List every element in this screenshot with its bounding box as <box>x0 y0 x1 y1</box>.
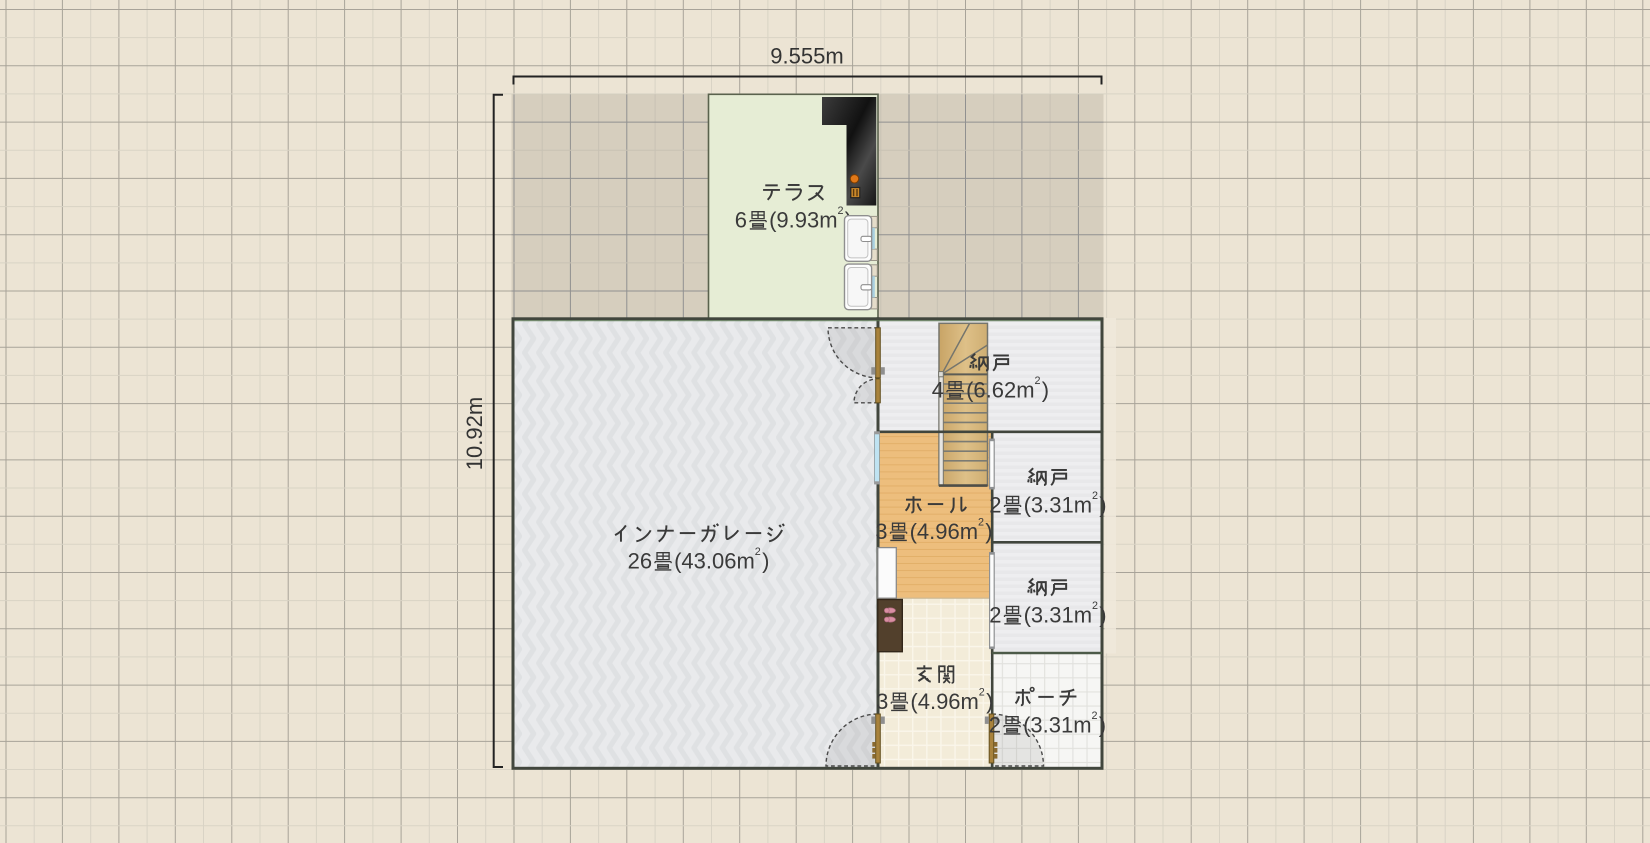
svg-text:): ) <box>1099 713 1106 738</box>
svg-text:2: 2 <box>1092 490 1098 502</box>
svg-text:(3.31m: (3.31m <box>1024 492 1092 517</box>
svg-text:9.555m: 9.555m <box>770 44 843 69</box>
svg-text:): ) <box>1099 602 1106 627</box>
svg-text:(9.93m: (9.93m <box>769 208 837 233</box>
svg-text:2: 2 <box>978 517 984 529</box>
svg-text:2: 2 <box>989 602 1001 627</box>
svg-text:): ) <box>985 519 992 544</box>
svg-text:(3.31m: (3.31m <box>1023 713 1091 738</box>
svg-text:(43.06m: (43.06m <box>674 549 755 574</box>
svg-text:10.92m: 10.92m <box>462 397 487 470</box>
svg-text:2: 2 <box>1092 710 1098 722</box>
svg-text:3: 3 <box>876 689 888 714</box>
svg-text:2: 2 <box>1035 375 1041 387</box>
svg-text:(6.62m: (6.62m <box>966 378 1034 403</box>
svg-text:26: 26 <box>628 549 652 574</box>
svg-text:(4.96m: (4.96m <box>910 689 978 714</box>
svg-text:): ) <box>986 689 993 714</box>
svg-text:): ) <box>1042 378 1049 403</box>
svg-text:(4.96m: (4.96m <box>910 519 978 544</box>
svg-text:(3.31m: (3.31m <box>1024 602 1092 627</box>
svg-text:): ) <box>762 549 769 574</box>
svg-text:): ) <box>1099 492 1106 517</box>
svg-text:2: 2 <box>989 713 1001 738</box>
svg-text:2: 2 <box>979 687 985 699</box>
svg-text:2: 2 <box>989 492 1001 517</box>
svg-text:2: 2 <box>755 546 761 558</box>
svg-text:3: 3 <box>875 519 887 544</box>
svg-text:2: 2 <box>838 205 844 217</box>
svg-text:4: 4 <box>932 378 944 403</box>
svg-text:6: 6 <box>735 208 747 233</box>
svg-text:2: 2 <box>1092 600 1098 612</box>
